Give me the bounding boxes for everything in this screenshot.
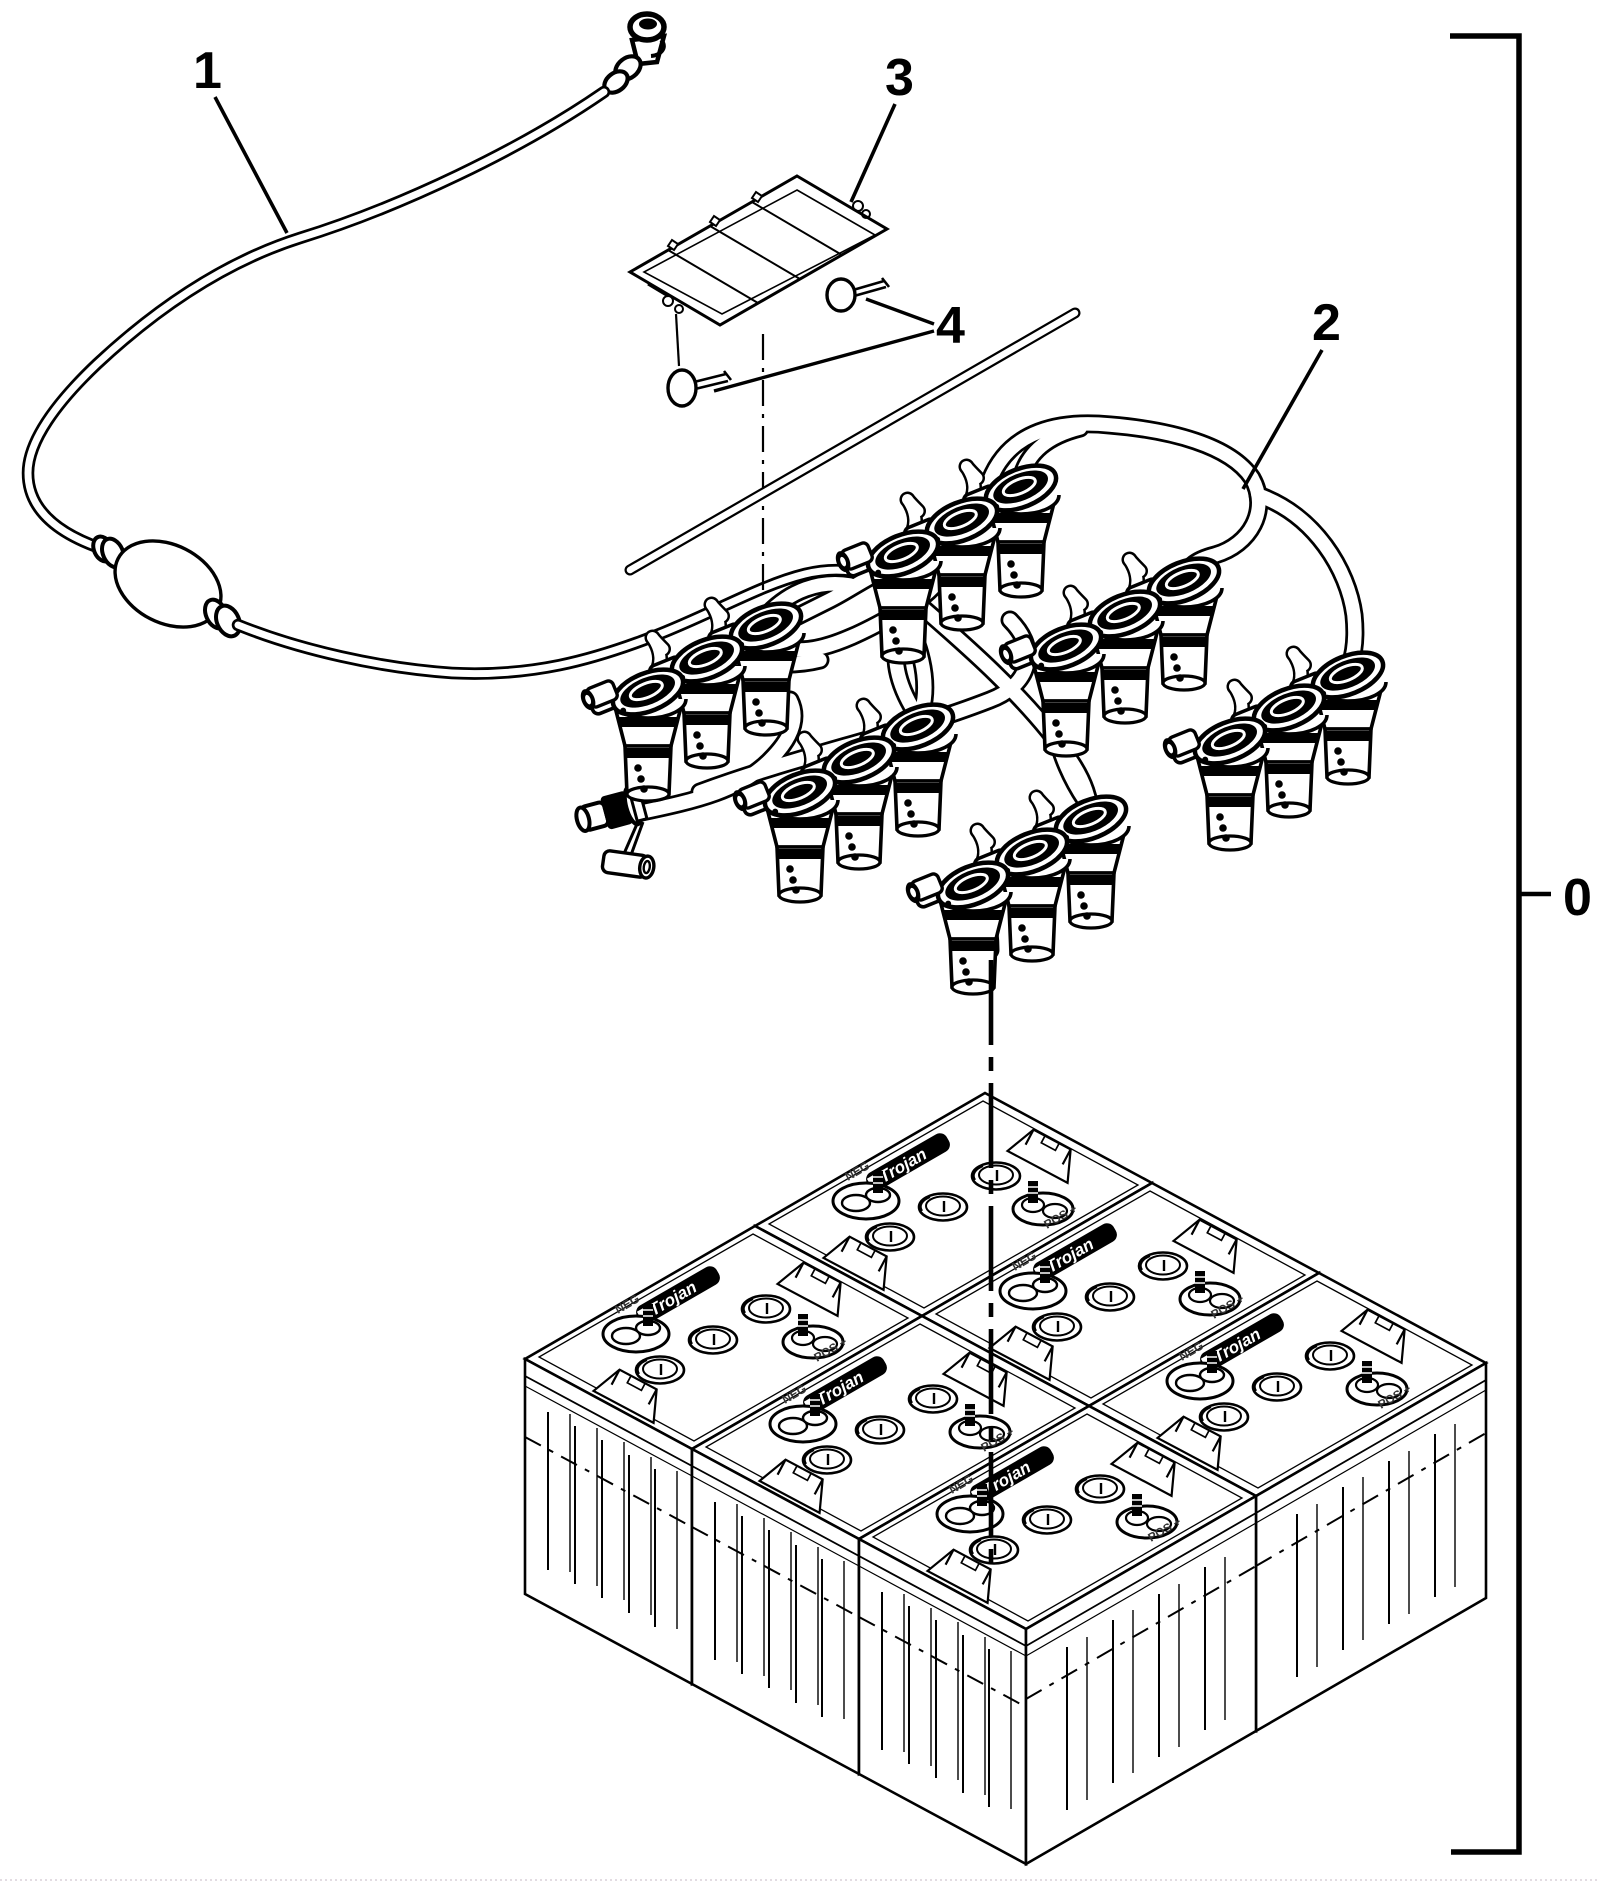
svg-text:1: 1 bbox=[193, 42, 222, 100]
svg-text:3: 3 bbox=[885, 49, 914, 107]
svg-text:4: 4 bbox=[936, 297, 965, 355]
svg-text:2: 2 bbox=[1312, 294, 1341, 352]
svg-text:0: 0 bbox=[1563, 869, 1592, 927]
